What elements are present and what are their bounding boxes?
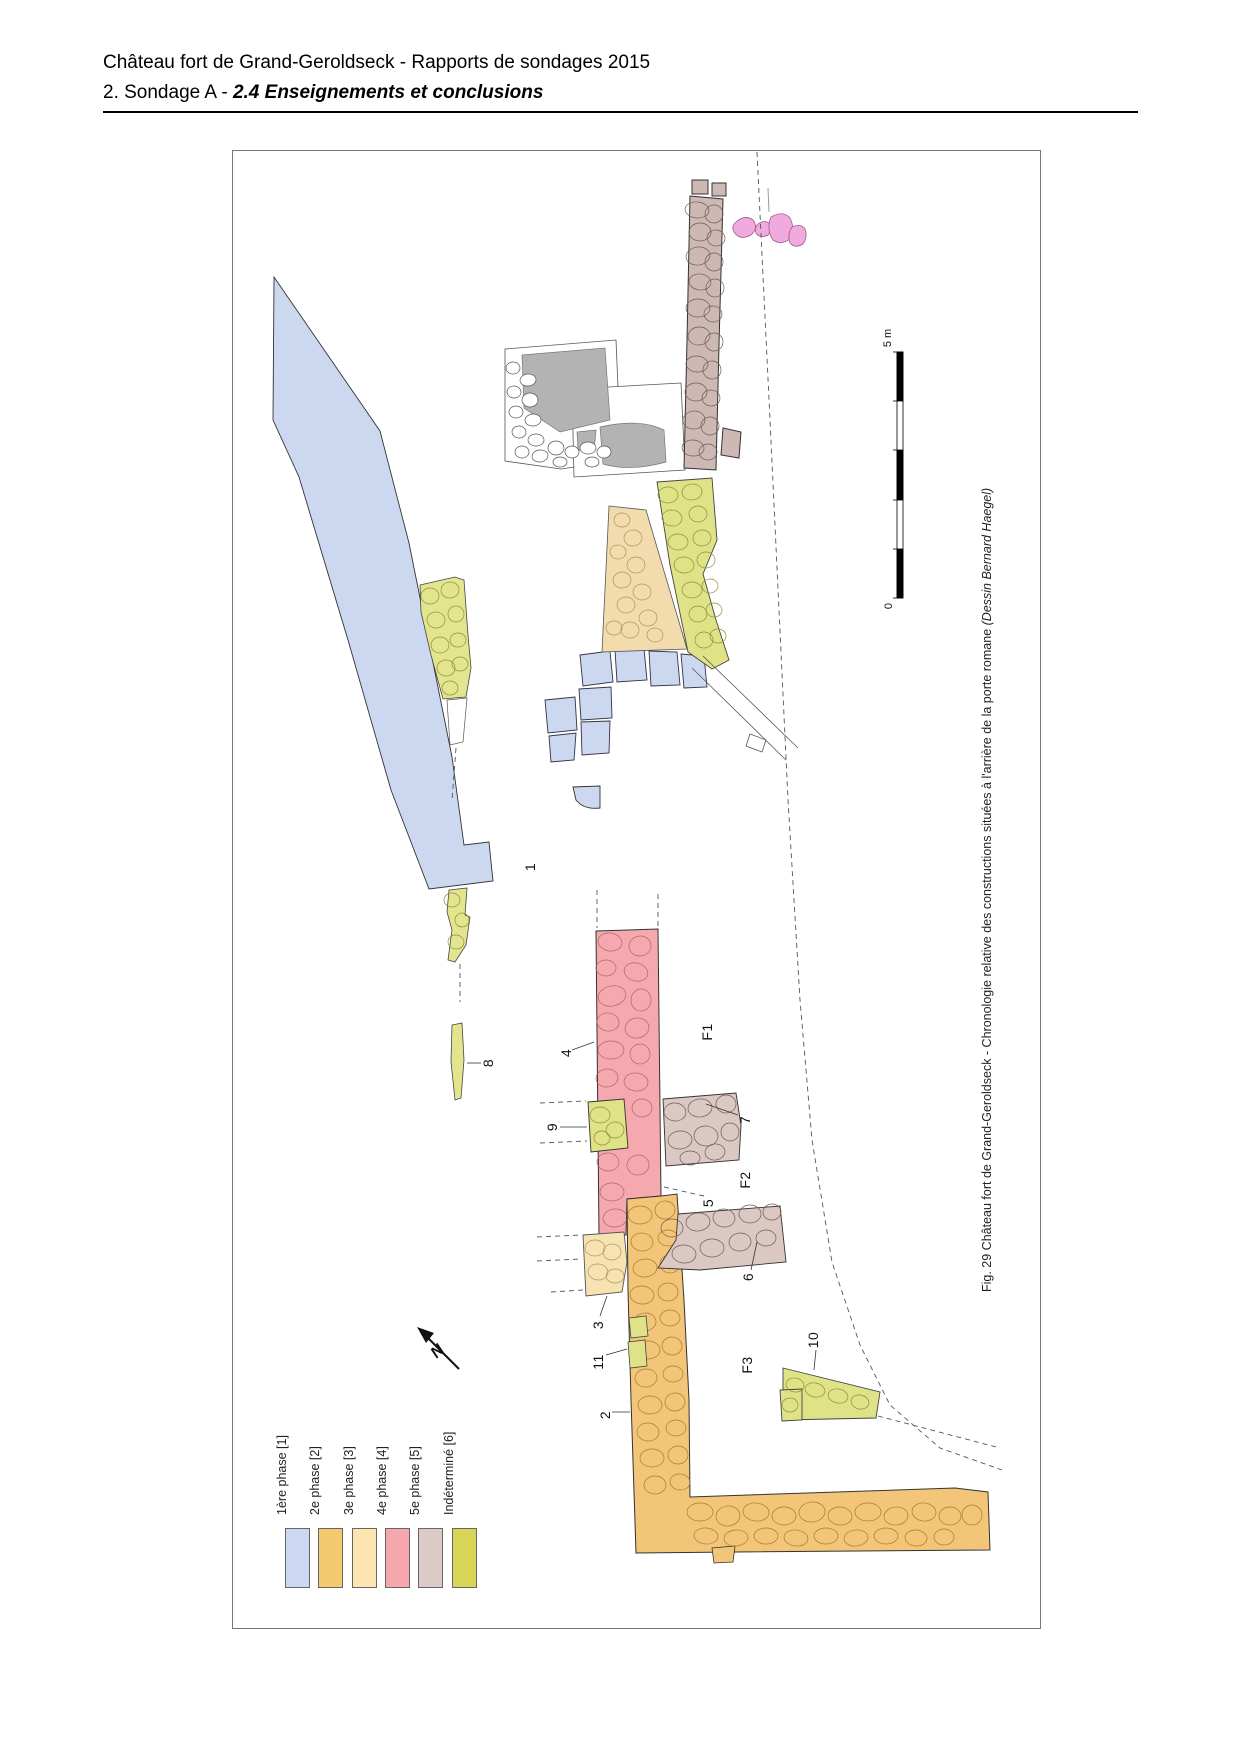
legend-swatch-1 [285,1528,310,1588]
legend-label-1: 1ère phase [1] [275,1435,290,1515]
plan-label-F2: F2 [737,1171,753,1188]
legend-label-2: 2e phase [2] [308,1446,323,1515]
legend-swatch-4 [385,1528,410,1588]
plan-label-10: 10 [805,1332,821,1349]
legend-label-6: Indéterminé [6] [442,1432,457,1515]
figure-caption-text: Fig. 29 Château fort de Grand-Geroldseck… [980,625,994,1292]
phase5-wall-7 [663,1093,741,1166]
scale-label-bottom: 0 [883,603,895,609]
legend-swatch-3 [352,1528,377,1588]
plan-label-F1: F1 [699,1023,715,1040]
phase1-stone-row [545,649,707,762]
legend-swatch-6 [452,1528,477,1588]
figure-caption-credit: (Dessin Bernard Haegel) [980,488,994,626]
plan-label-11: 11 [590,1354,606,1370]
legend-swatch-5 [418,1528,443,1588]
legend-label-5: 5e phase [5] [408,1446,423,1515]
legend-label-4: 4e phase [4] [375,1446,390,1515]
legend-label-3: 3e phase [3] [342,1446,357,1515]
plan-label-4: 4 [558,1049,574,1057]
phase1-small-block [573,786,600,808]
stone-outline-patch [447,698,467,745]
plan-label-8: 8 [480,1059,496,1067]
pink-fallen-blocks [733,214,806,247]
corridor-lines [692,656,798,760]
phase5-tower-wall [684,180,741,470]
plan-label-6: 6 [740,1273,756,1281]
indet-wall-8 [447,888,470,1100]
figure-caption: Fig. 29 Château fort de Grand-Geroldseck… [980,488,995,1292]
indet-wall-10 [780,1368,880,1421]
plan-drawing [0,0,1241,1755]
scale-bar [893,352,903,598]
plan-label-9: 9 [544,1123,560,1131]
plan-label-3: 3 [590,1321,606,1329]
scale-label-top: 5 m [882,329,894,347]
legend-swatch-2 [318,1528,343,1588]
phase4-wall [596,929,661,1236]
plan-label-5: 5 [700,1199,716,1207]
plan-label-1: 1 [522,863,538,871]
plan-label-2: 2 [597,1411,613,1419]
plan-label-F3: F3 [739,1356,755,1373]
indet-blocks-11 [628,1316,648,1368]
plan-label-7: 7 [737,1116,753,1124]
